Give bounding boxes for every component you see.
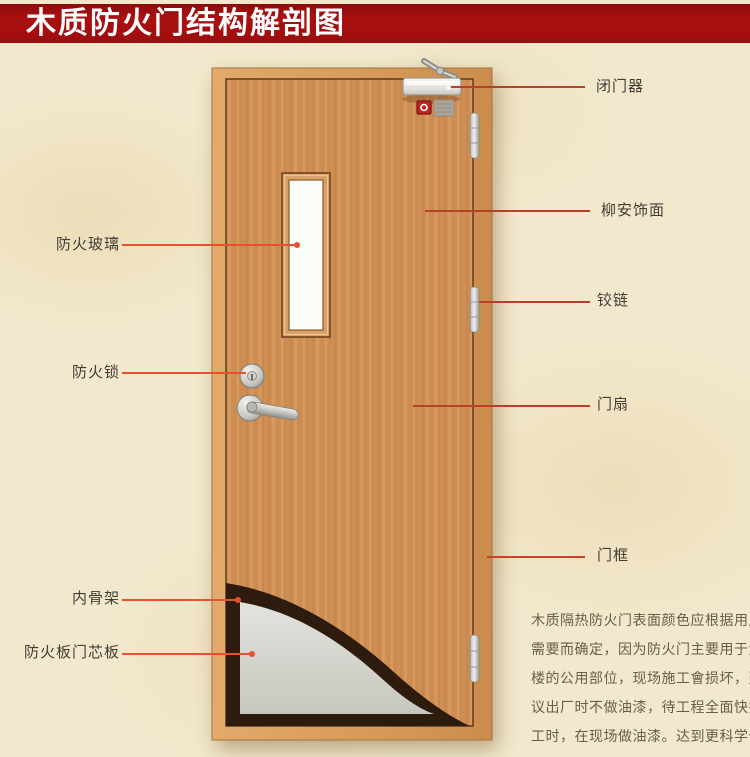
label-veneer: 柳安饰面 [601,203,665,219]
page-title: 木质防火门结构解剖图 [0,4,750,43]
label-hinge: 铰链 [597,293,629,309]
door-closer [402,61,461,104]
callout-line-fire-lock [122,372,246,374]
description-line: 需要而确定，因为防火门主要用于大 [531,635,731,664]
callout-line-core-board [122,653,252,655]
callout-dot-core-board [249,651,255,657]
description-line: 楼的公用部位，现场施工會损坏，建 [531,664,731,693]
description-paragraph: 木质隔热防火门表面颜色应根据用户 需要而确定，因为防火门主要用于大 楼的公用部位… [531,606,731,757]
fire-glass-window [282,173,330,337]
diagram-canvas: 木质防火门结构解剖图 [0,0,750,757]
description-line: 议出厂时不做油漆，待工程全面快完 [531,693,731,722]
label-fire-lock: 防火锁 [20,365,120,381]
callout-line-door-closer [448,86,585,88]
name-plaque [434,100,454,116]
label-door-leaf: 门扇 [597,397,629,413]
fire-glass [289,180,323,330]
label-fire-glass: 防火玻璃 [20,237,120,253]
callout-line-veneer [425,210,590,212]
label-inner-skeleton: 内骨架 [20,591,120,607]
callout-line-door-frame [487,556,585,558]
callout-line-door-leaf [413,405,590,407]
red-badge [417,101,431,114]
callout-dot-door-closer [446,85,451,90]
hinge-middle [470,287,479,332]
callout-dot-fire-glass [294,242,300,248]
description-line: 工时，在现场做油漆。达到更科学化 [531,722,731,751]
description-line: 木质隔热防火门表面颜色应根据用户 [531,606,731,635]
callout-line-hinge [479,301,590,303]
label-core-board: 防火板门芯板 [20,645,120,661]
callout-line-fire-glass [122,244,297,246]
fire-lock [240,364,264,388]
callout-dot-inner-skeleton [235,597,241,603]
hinge-bottom [470,635,479,682]
callout-line-inner-skeleton [122,599,238,601]
door-illustration [200,50,510,750]
description-line: 更人性化的服务。 [531,751,731,757]
hinge-top [470,113,479,158]
label-door-closer: 闭门器 [596,79,644,95]
label-door-frame: 门框 [597,548,629,564]
